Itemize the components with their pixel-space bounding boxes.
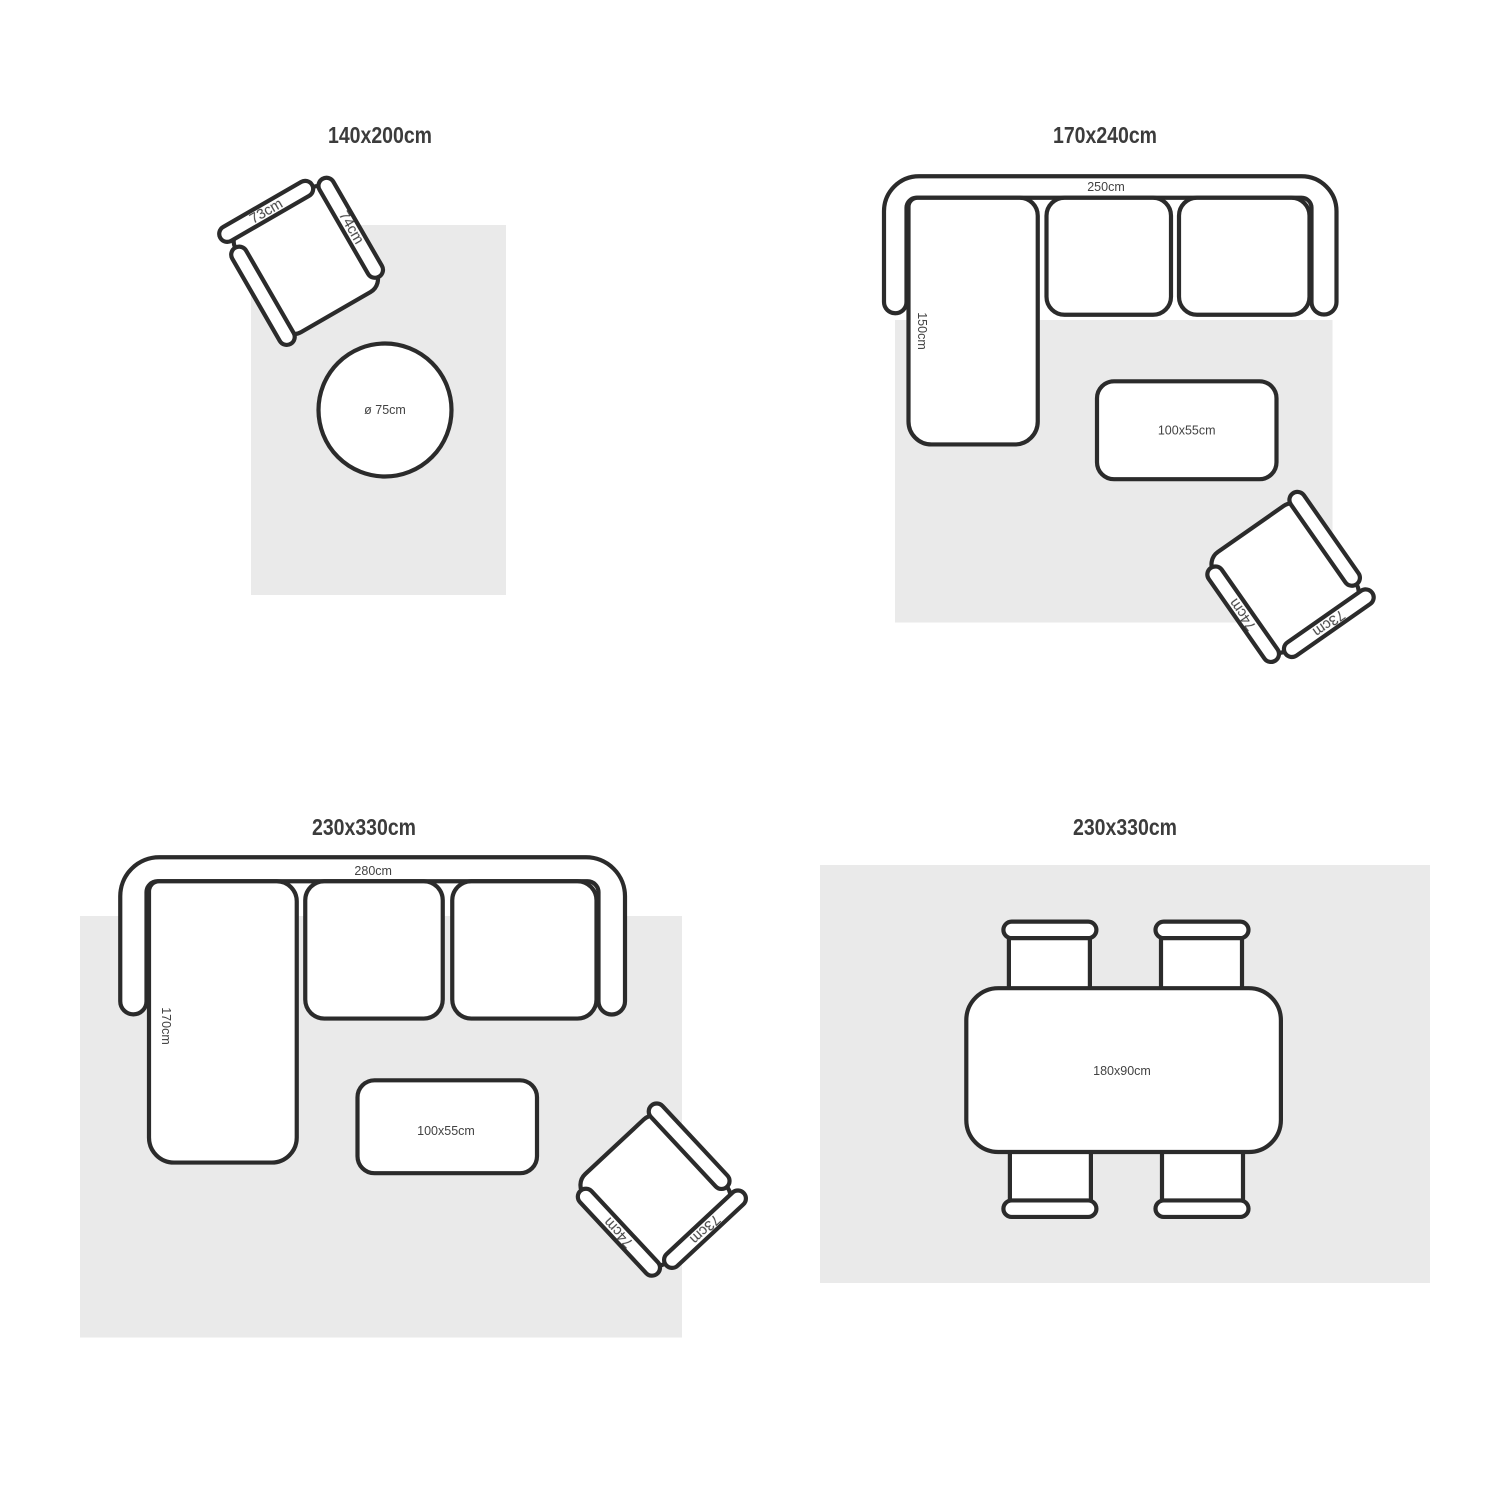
svg-text:170cm: 170cm [159,1007,173,1045]
svg-text:170x240cm: 170x240cm [1053,122,1157,148]
svg-text:140x200cm: 140x200cm [328,122,432,148]
svg-text:150cm: 150cm [915,312,929,350]
svg-text:280cm: 280cm [354,864,392,878]
svg-text:230x330cm: 230x330cm [1073,814,1177,840]
svg-text:230x330cm: 230x330cm [312,814,416,840]
svg-text:250cm: 250cm [1087,180,1125,194]
svg-text:ø 75cm: ø 75cm [364,403,406,417]
svg-text:100x55cm: 100x55cm [1158,424,1216,438]
svg-text:180x90cm: 180x90cm [1093,1064,1151,1078]
svg-text:100x55cm: 100x55cm [417,1124,475,1138]
